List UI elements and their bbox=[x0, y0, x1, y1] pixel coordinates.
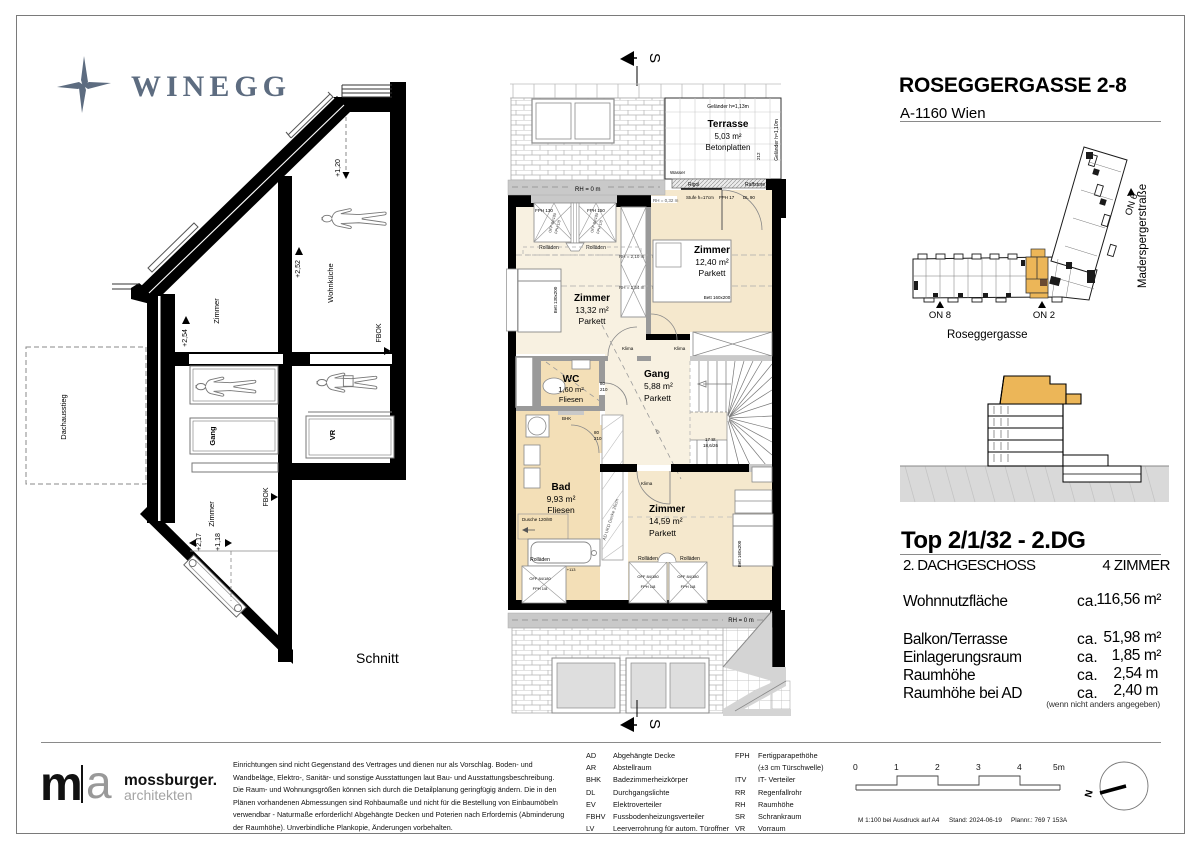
svg-text:12,40 m²: 12,40 m² bbox=[695, 257, 729, 267]
svg-text:Parkett: Parkett bbox=[579, 316, 607, 326]
svg-text:Parkett: Parkett bbox=[699, 268, 727, 278]
svg-text:Schnitt: Schnitt bbox=[356, 650, 399, 666]
svg-text:FPH 130: FPH 130 bbox=[535, 208, 553, 213]
svg-text:Geländer h=1,13m: Geländer h=1,13m bbox=[707, 104, 749, 110]
svg-text:Zimmer: Zimmer bbox=[212, 298, 221, 324]
svg-text:Wasser: Wasser bbox=[670, 170, 686, 175]
svg-text:9,93 m²: 9,93 m² bbox=[547, 494, 576, 504]
svg-text:RH = 2,10 m: RH = 2,10 m bbox=[619, 254, 645, 259]
svg-text:FBOK: FBOK bbox=[263, 487, 270, 506]
svg-text:212: 212 bbox=[756, 152, 761, 160]
svg-text:OFF 84/180: OFF 84/180 bbox=[637, 574, 659, 579]
svg-text:Zimmer: Zimmer bbox=[207, 501, 216, 527]
svg-text:RH = 2,54 m: RH = 2,54 m bbox=[619, 285, 645, 290]
svg-text:80: 80 bbox=[594, 430, 600, 435]
svg-text:0: 0 bbox=[853, 762, 858, 772]
svg-text:Dusche 120/80: Dusche 120/80 bbox=[522, 517, 553, 522]
svg-text:5,03 m²: 5,03 m² bbox=[714, 132, 741, 141]
svg-text:Fliesen: Fliesen bbox=[547, 505, 575, 515]
svg-text:Wohnküche: Wohnküche bbox=[326, 263, 335, 302]
svg-text:DL 90: DL 90 bbox=[743, 195, 755, 200]
svg-text:3: 3 bbox=[976, 762, 981, 772]
svg-text:BHK: BHK bbox=[562, 416, 571, 421]
svg-text:S: S bbox=[646, 53, 663, 63]
svg-text:Parkett: Parkett bbox=[649, 528, 677, 538]
svg-text:+1,20: +1,20 bbox=[335, 159, 342, 177]
svg-text:Geländer h=1,10m: Geländer h=1,10m bbox=[774, 119, 780, 161]
svg-text:Rolläden: Rolläden bbox=[530, 557, 550, 563]
svg-text:13,32 m²: 13,32 m² bbox=[575, 305, 609, 315]
svg-text:Rolläden: Rolläden bbox=[586, 245, 606, 251]
svg-text:Roseggergasse: Roseggergasse bbox=[947, 329, 1028, 341]
svg-text:RH = 0 m: RH = 0 m bbox=[575, 187, 601, 193]
svg-text:N: N bbox=[1083, 789, 1095, 799]
svg-text:Rolläden: Rolläden bbox=[680, 556, 700, 562]
svg-text:2: 2 bbox=[935, 762, 940, 772]
svg-text:Raffstore: Raffstore bbox=[745, 182, 765, 188]
svg-text:RH = 0 m: RH = 0 m bbox=[728, 618, 754, 624]
svg-text:VR: VR bbox=[328, 429, 337, 440]
svg-text:Klima: Klima bbox=[641, 481, 653, 486]
svg-text:ON 2: ON 2 bbox=[1033, 310, 1055, 321]
svg-text:RH = 0,32 m: RH = 0,32 m bbox=[653, 198, 679, 203]
svg-text:Bett 160x200: Bett 160x200 bbox=[737, 540, 742, 567]
svg-text:Klima: Klima bbox=[622, 346, 634, 351]
svg-text:Bad: Bad bbox=[552, 482, 571, 493]
svg-text:14,59 m²: 14,59 m² bbox=[649, 516, 683, 526]
svg-text:Stufe h=17cm: Stufe h=17cm bbox=[686, 195, 714, 200]
svg-text:80: 80 bbox=[600, 381, 606, 386]
svg-text:FPH 17: FPH 17 bbox=[719, 195, 735, 200]
svg-text:4: 4 bbox=[1017, 762, 1022, 772]
svg-text:FPH 150: FPH 150 bbox=[587, 208, 605, 213]
svg-text:+1,18: +1,18 bbox=[215, 533, 222, 551]
svg-text:FPH 1/8: FPH 1/8 bbox=[533, 586, 548, 591]
svg-text:Zimmer: Zimmer bbox=[574, 293, 610, 304]
svg-text:Gang: Gang bbox=[644, 369, 670, 380]
svg-text:S: S bbox=[646, 719, 663, 729]
svg-text:Terrasse: Terrasse bbox=[708, 119, 749, 130]
svg-text:Zimmer: Zimmer bbox=[649, 504, 685, 515]
svg-text:FPH 1/8: FPH 1/8 bbox=[681, 584, 696, 589]
svg-text:+2,17: +2,17 bbox=[196, 533, 203, 551]
svg-text:Zimmer: Zimmer bbox=[694, 245, 730, 256]
svg-text:Betonplatten: Betonplatten bbox=[706, 143, 751, 152]
svg-text:+2,52: +2,52 bbox=[295, 260, 302, 278]
svg-text:1: 1 bbox=[894, 762, 899, 772]
svg-text:Bett 160x200: Bett 160x200 bbox=[704, 295, 731, 300]
svg-text:210: 210 bbox=[600, 387, 608, 392]
svg-text:FBOK: FBOK bbox=[376, 323, 383, 342]
svg-text:Parkett: Parkett bbox=[644, 393, 672, 403]
svg-text:5,88 m²: 5,88 m² bbox=[644, 381, 673, 391]
svg-text:Rolläden: Rolläden bbox=[638, 556, 658, 562]
svg-text:Rigol: Rigol bbox=[688, 182, 699, 188]
svg-text:Dachausstieg: Dachausstieg bbox=[59, 394, 68, 439]
svg-text:Rolläden: Rolläden bbox=[539, 245, 559, 251]
svg-text:5m: 5m bbox=[1053, 762, 1065, 772]
svg-text:Bett 130x200: Bett 130x200 bbox=[553, 286, 558, 313]
svg-text:Klima: Klima bbox=[674, 346, 686, 351]
svg-text:Fliesen: Fliesen bbox=[559, 395, 583, 404]
svg-text:17 St: 17 St bbox=[705, 437, 716, 442]
svg-text:1,60 m²: 1,60 m² bbox=[558, 385, 584, 394]
svg-text:OFF 84/180: OFF 84/180 bbox=[529, 576, 551, 581]
svg-text:WC: WC bbox=[563, 374, 580, 385]
svg-text:210: 210 bbox=[594, 436, 602, 441]
svg-text:+2,54: +2,54 bbox=[182, 329, 189, 347]
svg-text:ON 8: ON 8 bbox=[929, 310, 951, 321]
svg-text:18,6/26: 18,6/26 bbox=[703, 443, 719, 448]
svg-text:OFF 84/180: OFF 84/180 bbox=[677, 574, 699, 579]
svg-text:Gang: Gang bbox=[208, 426, 217, 446]
svg-text:FPH 1/8: FPH 1/8 bbox=[641, 584, 656, 589]
